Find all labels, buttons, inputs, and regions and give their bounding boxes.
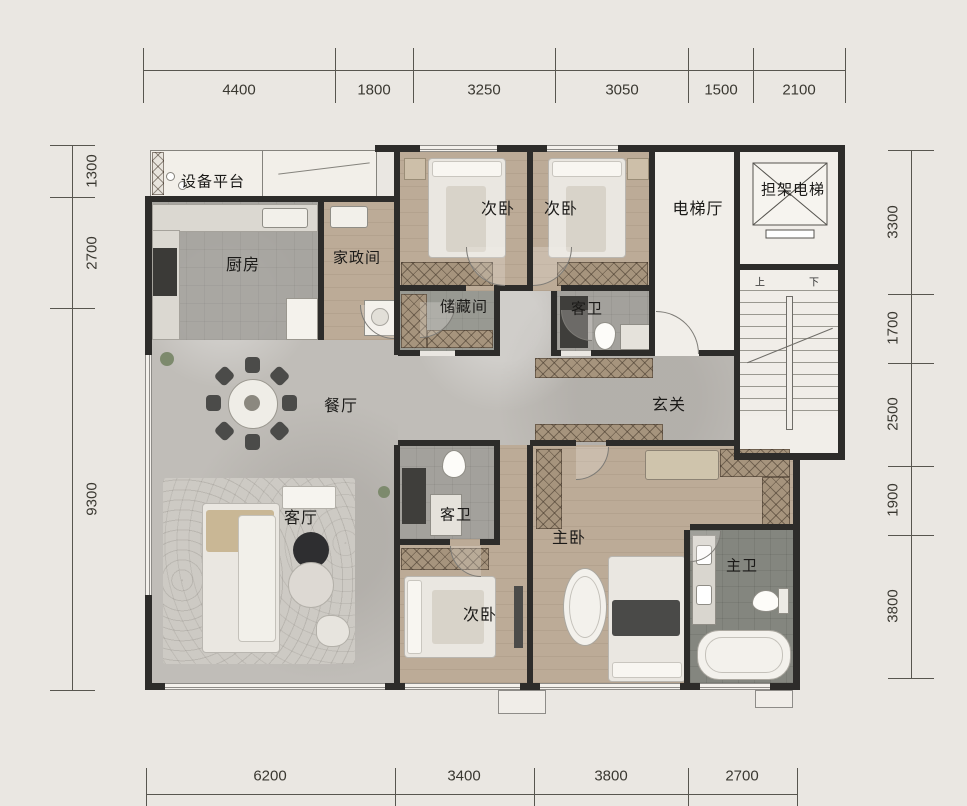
bath-mid-toilet (442, 450, 466, 478)
wall-segment (649, 152, 655, 356)
window (700, 683, 770, 690)
wall-segment (793, 460, 800, 690)
dim-left-0: 1300 (84, 154, 101, 187)
room-label-storage: 储藏间 (440, 296, 488, 317)
kitchen-sink (262, 208, 308, 228)
room-label-elevator-hall: 电梯厅 (672, 195, 723, 219)
dim-top-1: 1800 (357, 82, 390, 99)
dim-right-4: 3800 (885, 589, 902, 622)
living-sofa-cushions (238, 515, 276, 642)
wall-segment (551, 291, 557, 356)
room-label-equipment-platform: 设备平台 (181, 171, 245, 192)
exterior-stub (755, 690, 793, 708)
dim-top-3: 3050 (605, 82, 638, 99)
master-closet-side (762, 477, 790, 525)
master-bed-throw (612, 600, 680, 636)
dim-tick (888, 678, 934, 679)
laundry-sink (330, 206, 368, 228)
equipment-platform-hatch (152, 152, 164, 195)
room-label-laundry: 家政间 (333, 247, 381, 268)
foyer-cabinet-top (535, 358, 653, 378)
master-dresser (645, 450, 719, 480)
equipment-platform-divider (262, 151, 263, 196)
room-label-bedroom-bottom: 次卧 (463, 601, 497, 625)
dim-line-left (72, 145, 73, 690)
dim-tick (888, 150, 934, 151)
dining-chair (245, 357, 260, 373)
window (145, 355, 152, 595)
room-label-bedroom-top-right: 次卧 (544, 195, 578, 219)
wall-segment (398, 440, 500, 446)
mbath-toilet-tank (778, 588, 789, 614)
wall-segment (494, 445, 500, 539)
bed-top-right-pillows (552, 161, 622, 177)
wall-segment (480, 539, 500, 545)
wall-segment (551, 350, 561, 356)
dim-bottom-1: 3400 (447, 768, 480, 785)
living-stool (316, 615, 350, 647)
window (547, 145, 618, 152)
wall-segment (734, 152, 740, 460)
dining-table-center (244, 395, 260, 411)
dim-top-0: 4400 (222, 82, 255, 99)
wall-segment (606, 440, 740, 446)
stair-down-label: 下 (809, 274, 819, 289)
dim-right-3: 1900 (885, 483, 902, 516)
wall-segment (561, 285, 655, 291)
wall-segment (394, 152, 400, 355)
wall-segment (591, 350, 655, 356)
wall-segment (398, 285, 466, 291)
exterior-stub (498, 690, 546, 714)
bed-top-left-pillows (432, 161, 502, 177)
wall-segment (530, 440, 576, 446)
dim-tick (888, 363, 934, 364)
elevator-shaft-symbol (752, 162, 828, 240)
dim-tick (845, 48, 846, 103)
mbath-basin (696, 585, 712, 605)
coffee-table-light (288, 562, 334, 608)
mbath-toilet (752, 590, 780, 612)
dim-tick (688, 48, 689, 103)
bedroom-bottom-tv (514, 586, 523, 648)
wall-segment (398, 350, 420, 356)
dim-top-2: 3250 (467, 82, 500, 99)
plant (160, 352, 174, 366)
dim-tick (335, 48, 336, 103)
dim-tick (888, 294, 934, 295)
mbath-tub-inner (705, 637, 783, 673)
wall-segment (494, 291, 500, 356)
dim-bottom-0: 6200 (253, 768, 286, 785)
plant (378, 486, 390, 498)
master-wardrobe-left (536, 449, 562, 529)
dim-tick (395, 768, 396, 806)
dim-tick (50, 308, 95, 309)
wall-segment (527, 445, 533, 683)
wall-segment (740, 264, 838, 270)
floor-plan-canvas: 4400 1800 3250 3050 1500 2100 6200 3400 … (0, 0, 967, 806)
dim-tick (413, 48, 414, 103)
stair-up-label: 上 (755, 274, 765, 289)
dim-left-1: 2700 (84, 236, 101, 269)
wardrobe-bedroom-top-right (557, 262, 648, 286)
dim-tick (888, 466, 934, 467)
room-label-master-bath: 主卫 (726, 555, 758, 576)
room-label-guest-bath-mid: 客卫 (440, 504, 472, 525)
wall-segment (398, 539, 450, 545)
kitchen-fridge (286, 298, 318, 340)
dim-tick (534, 768, 535, 806)
bed-bottom-pillows (407, 580, 422, 654)
wall-segment (740, 453, 845, 460)
dim-tick (146, 768, 147, 806)
dim-tick (50, 690, 95, 691)
dim-tick (555, 48, 556, 103)
wall-segment (145, 196, 398, 202)
stair-rail (786, 296, 793, 430)
wall-segment (394, 445, 400, 683)
dim-line-bottom (146, 794, 797, 795)
dim-bottom-3: 2700 (725, 768, 758, 785)
master-bed-pillows (612, 662, 682, 678)
bath-mid-vanity (402, 468, 426, 524)
dim-tick (753, 48, 754, 103)
platform-drain (166, 172, 175, 181)
dim-line-top (143, 70, 845, 71)
dim-tick (797, 768, 798, 806)
window (540, 683, 680, 690)
window (420, 145, 497, 152)
dim-top-5: 2100 (782, 82, 815, 99)
nightstand (627, 158, 649, 180)
nightstand (404, 158, 426, 180)
dim-right-2: 2500 (885, 397, 902, 430)
room-label-living: 客厅 (284, 504, 318, 528)
wall-segment (494, 285, 533, 291)
wall-segment (318, 202, 324, 340)
wall-segment (690, 524, 793, 530)
dim-right-1: 1700 (885, 311, 902, 344)
master-tub-free-inner (569, 576, 601, 638)
wall-segment (838, 145, 845, 460)
dim-tick (688, 768, 689, 806)
room-label-bedroom-top-left: 次卧 (481, 195, 515, 219)
window (405, 683, 520, 690)
room-label-dining: 餐厅 (324, 392, 358, 416)
dim-tick (143, 48, 144, 103)
dining-chair (245, 434, 260, 450)
room-label-kitchen: 厨房 (226, 251, 260, 275)
dim-left-2: 9300 (84, 482, 101, 515)
dining-chair (206, 395, 221, 411)
dim-tick (50, 197, 95, 198)
dim-top-4: 1500 (704, 82, 737, 99)
dim-bottom-2: 3800 (594, 768, 627, 785)
room-label-stretcher-elevator: 担架电梯 (761, 179, 825, 200)
dim-tick (888, 535, 934, 536)
dim-line-right (911, 150, 912, 678)
wall-segment (455, 350, 500, 356)
wall-segment (699, 350, 740, 356)
dim-right-0: 3300 (885, 205, 902, 238)
kitchen-range (153, 248, 177, 296)
room-label-master-bedroom: 主卧 (552, 524, 586, 548)
bath-top-shower (620, 324, 650, 350)
dim-tick (50, 145, 95, 146)
dining-chair (282, 395, 297, 411)
room-label-guest-bath-top: 客卫 (571, 298, 603, 319)
room-label-foyer: 玄关 (652, 391, 686, 415)
window (165, 683, 385, 690)
